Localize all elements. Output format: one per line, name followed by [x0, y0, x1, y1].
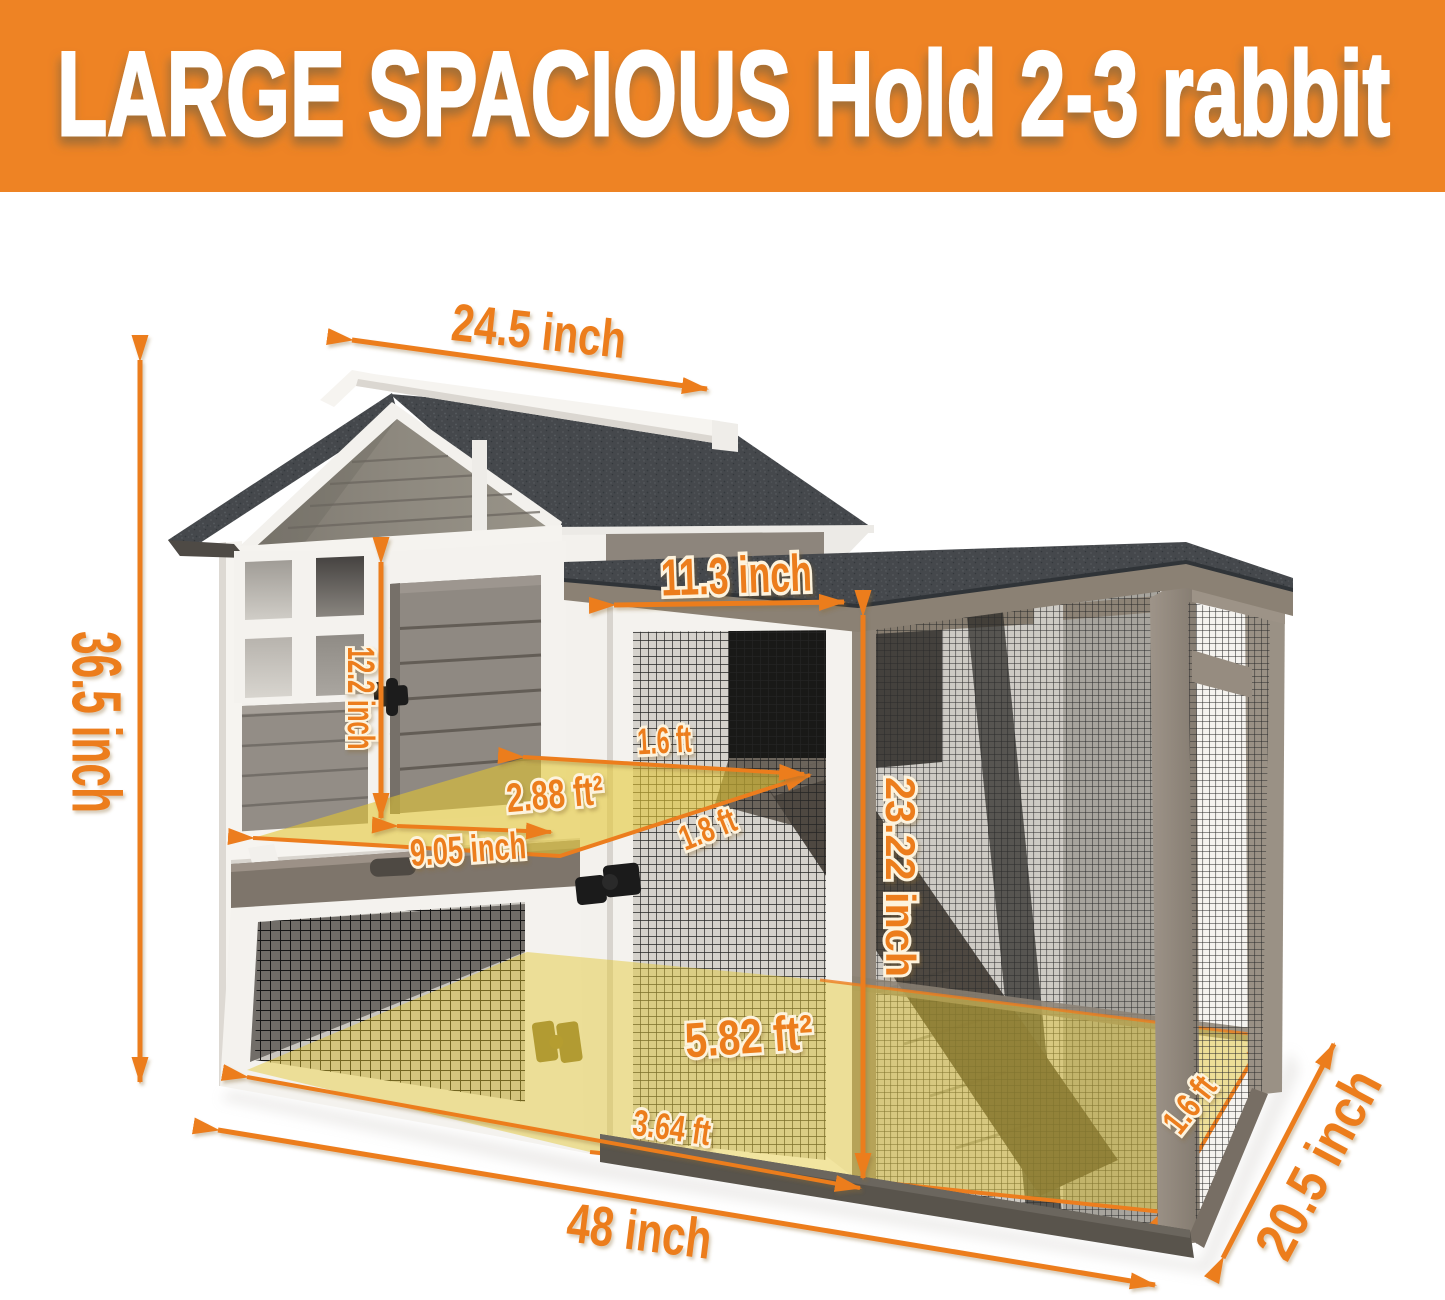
svg-text:23.22 inch: 23.22 inch [877, 777, 924, 977]
svg-text:LARGE SPACIOUS Hold 2-3 rabbit: LARGE SPACIOUS Hold 2-3 rabbit [57, 27, 1390, 161]
svg-text:11.3 inch: 11.3 inch [660, 544, 813, 607]
svg-text:2.88 ft²: 2.88 ft² [504, 767, 605, 821]
svg-text:12.2 inch: 12.2 inch [339, 647, 381, 750]
svg-text:5.82 ft²: 5.82 ft² [683, 1006, 814, 1069]
svg-text:1.6 ft: 1.6 ft [636, 719, 692, 763]
svg-text:36.5 inch: 36.5 inch [58, 631, 136, 813]
svg-text:9.05 inch: 9.05 inch [409, 825, 528, 875]
